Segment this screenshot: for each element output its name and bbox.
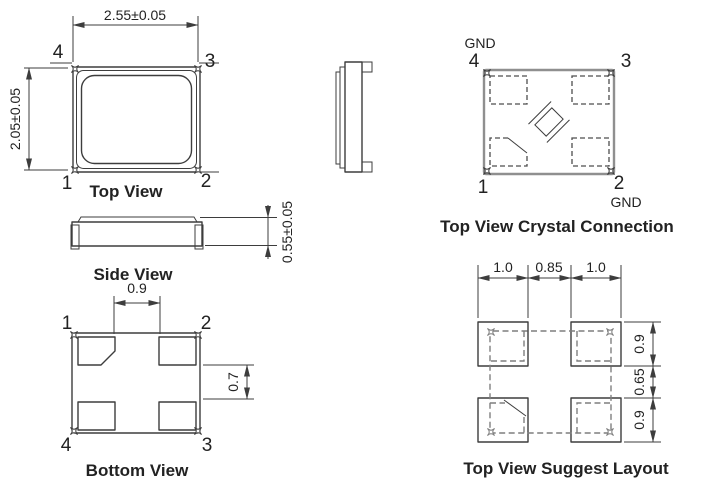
top-view-package-mid	[77, 71, 197, 169]
layout-dashed-pad-bottom-left	[490, 403, 524, 433]
bottom-view-gap-y-dimension: 0.7	[225, 372, 241, 392]
layout-dashed-pad-top-right	[577, 331, 611, 361]
crystal-connection-pad-4	[490, 76, 527, 104]
corner-notch	[71, 65, 78, 72]
end-view-bottom-terminal	[362, 162, 372, 172]
top-view-package-lid	[82, 76, 192, 164]
crystal-connection-view: GND 4 3 1 2 GND Top View Crystal Connect…	[440, 35, 674, 236]
top-view-pin-1: 1	[62, 173, 73, 194]
layout-pad-bottom-left	[478, 398, 528, 442]
layout-right-pad-width-dimension: 1.0	[586, 259, 606, 275]
end-view-body	[345, 62, 362, 172]
top-view: 2.55±0.05 2.05±0.05 4 3 1 2 Top View	[7, 7, 219, 201]
top-view-pin-3: 3	[205, 51, 216, 72]
side-view-thickness-dimension: 0.55±0.05	[279, 201, 295, 263]
suggest-layout-caption: Top View Suggest Layout	[463, 459, 669, 478]
top-view-width-dimension: 2.55±0.05	[104, 7, 166, 23]
top-view-pin-2: 2	[201, 171, 212, 192]
side-view-lid	[78, 217, 197, 222]
layout-bottom-pad-height-dimension: 0.9	[631, 410, 647, 430]
layout-pad-top-left	[478, 322, 528, 366]
gnd-label-bottom: GND	[610, 194, 641, 210]
crystal-connection-pad-1	[490, 138, 527, 166]
layout-package-outline-dashed	[490, 331, 611, 433]
layout-dashed-pad-bottom-right	[577, 403, 611, 433]
crystal-connection-pin-1-label: 1	[478, 177, 489, 198]
corner-notch	[487, 428, 494, 435]
bottom-view-pad-3	[159, 402, 196, 430]
crystal-connection-pin-3-label: 3	[621, 51, 632, 72]
bottom-view-package-outline	[72, 333, 200, 433]
corner-notch	[606, 328, 613, 335]
crystal-symbol-electrode	[528, 101, 551, 124]
suggest-layout-view: 1.0 0.85 1.0 0.9 0.65 0.9 Top View Sugge…	[463, 259, 669, 478]
bottom-view-pin-3: 3	[202, 435, 213, 456]
top-view-height-dimension: 2.05±0.05	[7, 88, 23, 150]
layout-left-pad-width-dimension: 1.0	[493, 259, 513, 275]
crystal-connection-caption: Top View Crystal Connection	[440, 217, 674, 236]
layout-top-pad-height-dimension: 0.9	[631, 334, 647, 354]
crystal-connection-pad-2	[572, 138, 609, 166]
bottom-view-gap-x-dimension: 0.9	[127, 280, 147, 296]
layout-gap-x-dimension: 0.85	[535, 259, 562, 275]
bottom-view-pad-4	[78, 402, 115, 430]
side-view-body	[72, 222, 202, 246]
layout-pad-1-chamfer	[504, 400, 526, 416]
end-view-seal-ring	[340, 67, 345, 168]
bottom-view-pin-4: 4	[61, 435, 72, 456]
crystal-symbol-electrode	[547, 120, 570, 143]
top-view-package-outer	[73, 67, 200, 172]
package-outline-drawing: 2.55±0.05 2.05±0.05 4 3 1 2 Top View 0.5…	[0, 0, 719, 494]
gnd-label-top: GND	[464, 35, 495, 51]
crystal-connection-pin-2-label: 2	[614, 173, 625, 194]
side-view-end-profile	[336, 62, 372, 172]
crystal-symbol-body	[535, 108, 563, 136]
side-view: 0.55±0.05 Side View	[71, 201, 295, 284]
top-view-pin-4: 4	[53, 42, 64, 63]
crystal-connection-pin-4-label: 4	[469, 51, 480, 72]
end-view-lid	[336, 72, 340, 164]
bottom-view-caption: Bottom View	[86, 461, 189, 480]
corner-notch	[606, 428, 613, 435]
technical-drawing-canvas: 2.55±0.05 2.05±0.05 4 3 1 2 Top View 0.5…	[0, 0, 719, 494]
bottom-view-pad-1	[78, 337, 115, 365]
bottom-view-pin-2: 2	[201, 313, 212, 334]
layout-gap-y-dimension: 0.65	[631, 368, 647, 395]
pad-1-chamfer	[508, 138, 527, 153]
corner-notch	[487, 328, 494, 335]
top-view-caption: Top View	[89, 182, 163, 201]
bottom-view-pad-2	[159, 337, 196, 365]
crystal-connection-pad-3	[572, 76, 609, 104]
corner-notch	[194, 65, 201, 72]
layout-dashed-pad-top-left	[490, 331, 524, 361]
crystal-symbol	[528, 101, 569, 142]
bottom-view-pin-1: 1	[62, 313, 73, 334]
end-view-top-terminal	[362, 62, 372, 72]
crystal-connection-package-outline	[484, 70, 614, 174]
corner-notch	[71, 166, 78, 173]
bottom-view: 0.9 0.7 1 2 4 3 Bottom View	[61, 280, 254, 480]
